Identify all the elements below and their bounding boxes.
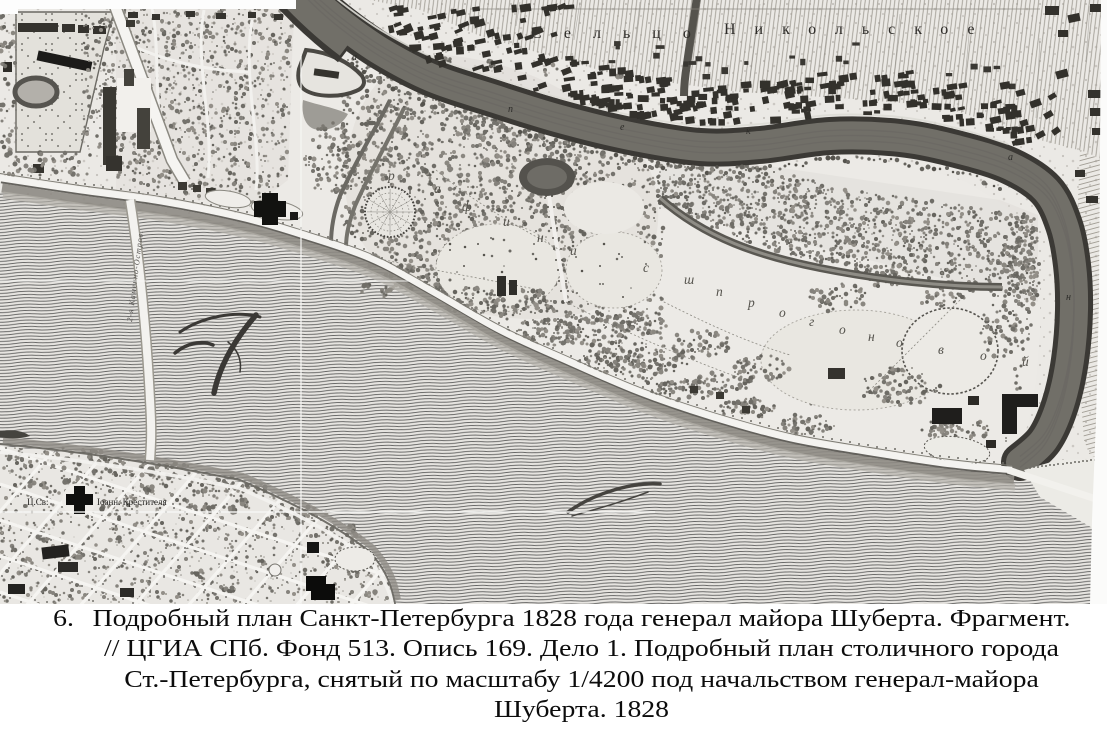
svg-text:н: н (868, 329, 875, 344)
svg-text:о: о (839, 322, 846, 337)
svg-text:й: й (1022, 354, 1029, 369)
svg-text:г: г (809, 314, 814, 329)
svg-text:о: о (779, 305, 786, 320)
svg-text:в: в (938, 342, 944, 357)
svg-text:Іоанн. Крестителя: Іоанн. Крестителя (97, 497, 167, 507)
svg-text:к: к (746, 126, 751, 137)
svg-text:о: о (980, 348, 987, 363)
svg-text:п: п (508, 104, 513, 115)
svg-text:п: п (716, 284, 723, 299)
svg-text:а: а (434, 181, 441, 196)
svg-text:а: а (1008, 152, 1013, 163)
svg-text:н: н (1066, 292, 1071, 303)
svg-text:р: р (387, 168, 395, 183)
svg-text:о: о (896, 335, 903, 350)
svg-text:с: с (643, 260, 649, 275)
svg-text:а: а (352, 52, 357, 63)
svg-text:и: и (503, 214, 510, 229)
svg-text:ф: ф (462, 199, 472, 214)
svg-text:ш: ш (684, 272, 694, 287)
svg-text:н: н (537, 230, 544, 245)
svg-text:Сельцо: Сельцо (531, 25, 713, 42)
svg-text:и: и (570, 243, 577, 258)
svg-text:Никольское: Никольское (724, 21, 994, 38)
svg-text:р: р (747, 295, 755, 310)
svg-text:е: е (620, 122, 625, 133)
svg-text:Ц.Св:: Ц.Св: (27, 497, 49, 507)
